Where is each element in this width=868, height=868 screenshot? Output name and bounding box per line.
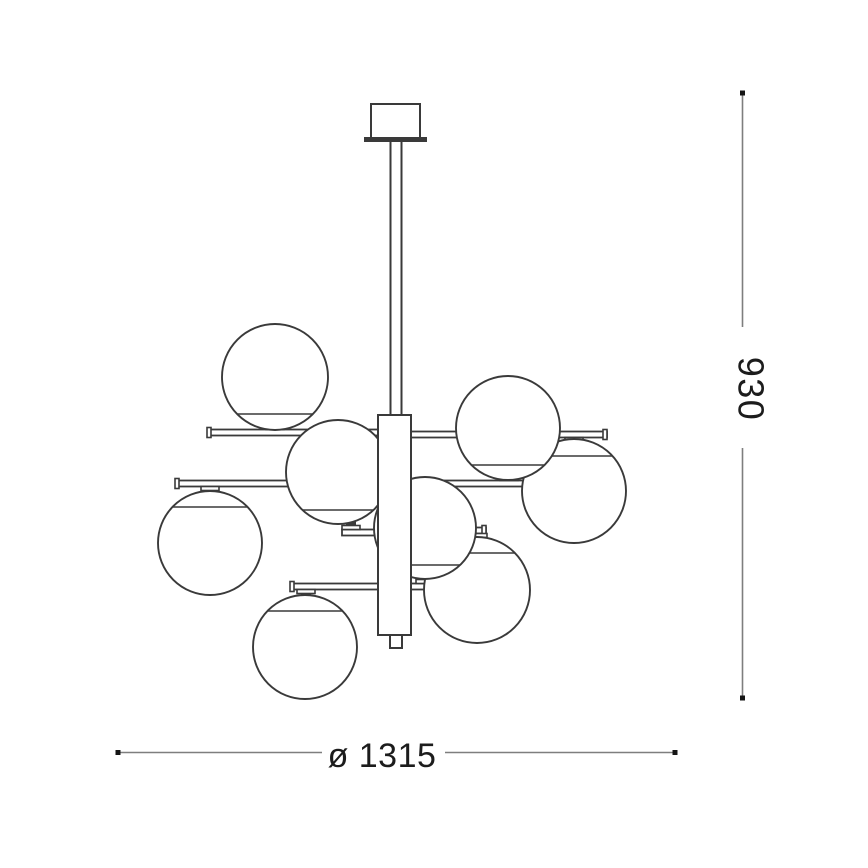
arm-end-cap: [175, 479, 179, 489]
arm-end-cap: [603, 430, 607, 440]
globe-5: [158, 491, 262, 595]
ceiling-mount: [364, 104, 427, 142]
height-dimension: 930: [731, 91, 772, 701]
central-column: [378, 415, 411, 648]
arm-bottom: [292, 584, 435, 590]
globe-circle: [286, 420, 390, 524]
canopy-plate: [364, 137, 427, 142]
height-dimension-label: 930: [731, 357, 772, 422]
dimension-end-dot: [673, 750, 678, 755]
dimension-end-dot: [116, 750, 121, 755]
suspension-rod: [391, 141, 402, 417]
holder-plate: [342, 526, 360, 530]
dimension-end-dot: [740, 91, 745, 96]
holder-plate: [201, 487, 219, 491]
dimension-end-dot: [740, 696, 745, 701]
globe-3: [456, 376, 560, 480]
diameter-dimension: ø 1315: [116, 737, 678, 775]
diagram-canvas: 930 ø 1315: [0, 0, 868, 868]
arm-end-cap: [207, 428, 211, 438]
canopy-box: [371, 104, 420, 138]
column-body: [378, 415, 411, 635]
globe-2: [286, 420, 390, 524]
column-end-stub: [390, 635, 402, 648]
globe-1: [222, 324, 328, 430]
chandelier-dimension-diagram: 930 ø 1315: [0, 0, 868, 868]
globe-8: [253, 595, 357, 699]
arm-end-cap: [290, 582, 294, 592]
holder-plate: [297, 590, 315, 594]
diameter-dimension-label: ø 1315: [328, 737, 437, 775]
